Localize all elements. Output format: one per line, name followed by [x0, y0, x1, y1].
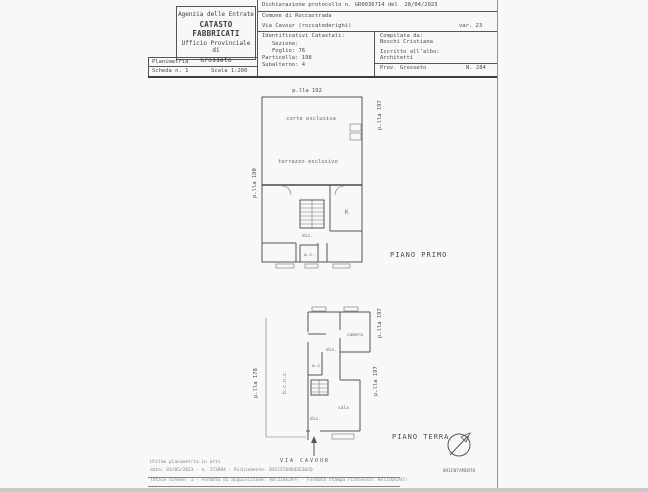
primo-window-3: [333, 264, 350, 268]
terra-wc-label: w.c.: [312, 364, 323, 369]
terra-parcel-right-bottom-label: p.lla 197: [373, 366, 379, 396]
entrance-arrow: [311, 436, 317, 456]
piano-terra-plan: p.lla 197 p.lla 197 p.lla 178 b.c.n.c. c…: [253, 307, 449, 464]
terra-window-top-1: [312, 307, 326, 311]
primo-wall-fixture-1: [350, 124, 361, 131]
primo-kitchen-label: K: [345, 209, 349, 216]
terra-parcel-right-top-label: p.lla 197: [377, 308, 383, 338]
scanned-cadastral-document: Agenzia delle Entrate CATASTO FABBRICATI…: [0, 0, 648, 492]
floorplan-drawing: p.lla 192 p.lla 197 p.lla 190 corte escl…: [0, 0, 648, 492]
terra-window-bottom: [332, 434, 354, 439]
street-label: VIA CAVOUR: [280, 458, 330, 464]
terra-staircase: [311, 380, 328, 395]
primo-terrazzo-label: terrazzo esclusivo: [278, 159, 338, 165]
terra-parcel-left-label: p.lla 178: [253, 368, 259, 398]
scan-bottom-edge: [0, 488, 648, 492]
primo-wall-fixture-2: [350, 133, 361, 140]
primo-door-arc-left: [282, 186, 291, 195]
primo-door-arc-right: [335, 186, 344, 195]
terra-window-top-2: [344, 307, 358, 311]
primo-corte-label: corte esclusiva: [286, 116, 336, 122]
terra-dis-top-label: dis.: [326, 347, 337, 353]
primo-parcel-right-label: p.lla 197: [377, 100, 383, 130]
terra-title: PIANO TERRA: [392, 433, 449, 441]
footer-line-2: data: 03/05/2023 - n. 173894 - Richieden…: [150, 469, 313, 474]
footer-rule-bottom: [148, 486, 400, 487]
terra-court-label: b.c.n.c.: [282, 370, 288, 394]
primo-window-2: [305, 264, 318, 268]
terra-dis-bottom-label: dis.: [310, 416, 321, 422]
primo-dis-label: dis.: [302, 233, 313, 239]
primo-wc-label: w.c.: [304, 253, 315, 258]
terra-sala-label: sala: [338, 405, 349, 411]
footer-line-1: Ultima planimetria in atti: [150, 461, 220, 466]
compass-label: ORIENTAMENTO: [443, 468, 476, 474]
primo-parcel-top-label: p.lla 192: [292, 88, 322, 94]
compass-needle-icon: [450, 436, 468, 455]
piano-primo-plan: p.lla 192 p.lla 197 p.lla 190 corte escl…: [252, 88, 447, 268]
primo-parcel-left-label: p.lla 190: [252, 168, 258, 198]
footer-line-3: Totale schede: 1 - Formato di acquisizio…: [150, 479, 407, 484]
primo-staircase: [300, 200, 324, 228]
primo-window-1: [276, 264, 294, 268]
primo-title: PIANO PRIMO: [390, 251, 447, 259]
terra-camera-label: camera: [347, 333, 364, 338]
